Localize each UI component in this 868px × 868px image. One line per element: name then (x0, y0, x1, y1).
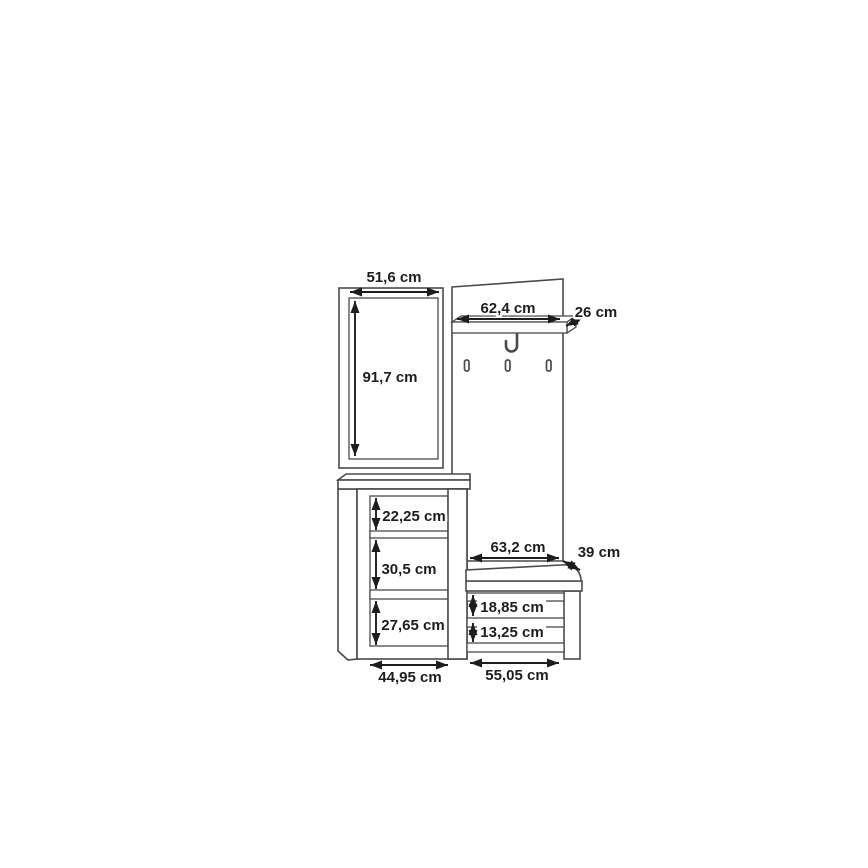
dimension-bench-base-width: 55,05 cm (470, 663, 559, 684)
dim-label-compartment-middle: 30,5 cm (381, 561, 436, 578)
bench-right-leg (564, 591, 580, 659)
dimension-cabinet-base-width: 44,95 cm (370, 665, 448, 686)
dim-label-compartment-bottom: 27,65 cm (381, 617, 444, 634)
wall-hook-icon (547, 360, 552, 371)
bench-cushion (466, 565, 581, 581)
dimension-bench-depth: 39 cm (563, 544, 620, 570)
bench-bottom-board (467, 643, 564, 652)
cabinet-left-side (338, 489, 357, 660)
dimension-shelf-depth: 26 cm (566, 304, 617, 326)
dim-label-mirror-width: 51,6 cm (366, 269, 421, 286)
dimension-bench-gap-upper: 18,85 cm (473, 595, 546, 616)
cabinet-top-face (338, 474, 470, 480)
center-pillar (448, 489, 467, 659)
cabinet-top-board (338, 480, 470, 489)
wall-hook-icon (506, 360, 511, 371)
dim-label-mirror-height: 91,7 cm (362, 369, 417, 386)
drawing-page: 51,6 cm 91,7 cm 62,4 cm 26 cm 22,25 cm 3… (0, 0, 868, 868)
dim-label-bench-gap-lower: 13,25 cm (480, 624, 543, 641)
dim-label-bench-depth: 39 cm (578, 544, 621, 561)
dimension-bench-gap-lower: 13,25 cm (473, 622, 546, 642)
dim-label-bench-gap-upper: 18,85 cm (480, 599, 543, 616)
dim-label-shelf-depth: 26 cm (575, 304, 618, 321)
dim-label-bench-width: 63,2 cm (490, 539, 545, 556)
wall-hook-icon (465, 360, 470, 371)
shelf-front-face (452, 322, 567, 333)
cabinet-shelf-upper (370, 531, 448, 538)
dim-label-bench-base: 55,05 cm (485, 667, 548, 684)
bench-seat-board (466, 581, 582, 591)
dim-label-shelf-width: 62,4 cm (480, 300, 535, 317)
dim-label-cabinet-base: 44,95 cm (378, 669, 441, 686)
wardrobe-technical-drawing: 51,6 cm 91,7 cm 62,4 cm 26 cm 22,25 cm 3… (0, 0, 868, 868)
dim-label-compartment-top: 22,25 cm (382, 508, 445, 525)
cabinet-shelf-lower (370, 590, 448, 599)
